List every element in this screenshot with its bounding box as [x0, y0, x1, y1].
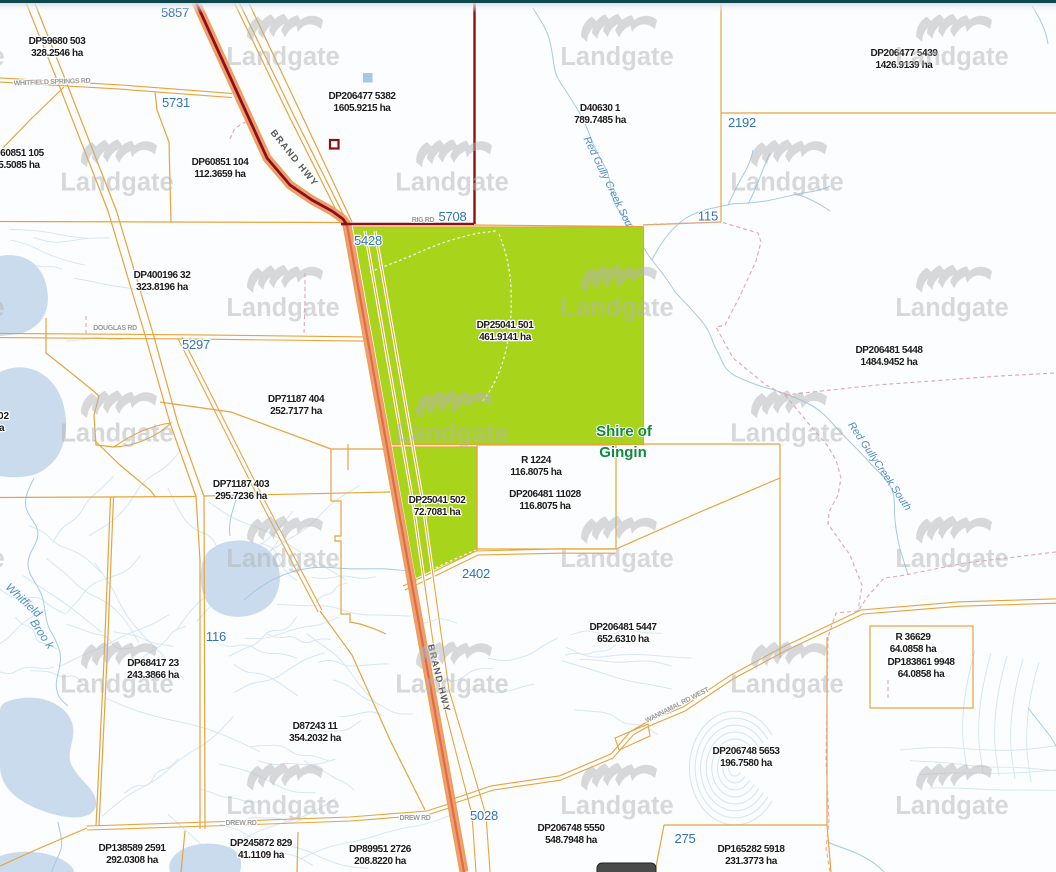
- svg-text:652.6310 ha: 652.6310 ha: [597, 634, 650, 645]
- svg-text:DP25041 501: DP25041 501: [477, 320, 535, 331]
- svg-text:196.7580 ha: 196.7580 ha: [720, 758, 773, 769]
- svg-text:DP89951 2726: DP89951 2726: [349, 844, 412, 855]
- svg-text:DP183861 9948: DP183861 9948: [887, 657, 955, 668]
- svg-text:DP71187 404: DP71187 404: [268, 394, 325, 405]
- svg-text:R 1224: R 1224: [521, 455, 552, 466]
- svg-text:DP245872 829: DP245872 829: [230, 838, 293, 849]
- svg-text:461.9141 ha: 461.9141 ha: [479, 332, 532, 343]
- svg-text:354.2032 ha: 354.2032 ha: [289, 733, 342, 744]
- svg-text:72.7081 ha: 72.7081 ha: [414, 507, 461, 518]
- svg-text:DP59680 503: DP59680 503: [29, 36, 87, 47]
- svg-text:DP25041 502: DP25041 502: [409, 495, 467, 506]
- svg-text:Shire of: Shire of: [596, 423, 653, 440]
- svg-text:DP165282 5918: DP165282 5918: [717, 844, 785, 855]
- svg-text:328.2546 ha: 328.2546 ha: [31, 48, 84, 59]
- svg-text:DP60851 104: DP60851 104: [192, 157, 250, 168]
- svg-text:DP400196 32: DP400196 32: [134, 270, 192, 281]
- svg-text:1605.9215 ha: 1605.9215 ha: [334, 103, 392, 114]
- svg-text:295.7236 ha: 295.7236 ha: [215, 491, 268, 502]
- svg-text:275: 275: [674, 831, 695, 846]
- svg-text:DP206748 5653: DP206748 5653: [712, 746, 780, 757]
- svg-text:116: 116: [206, 629, 226, 644]
- svg-text:789.7485 ha: 789.7485 ha: [574, 115, 627, 126]
- svg-text:DOUGLAS RD: DOUGLAS RD: [93, 325, 137, 332]
- svg-text:DP68417 23: DP68417 23: [127, 658, 179, 669]
- svg-text:5028: 5028: [470, 808, 498, 823]
- svg-text:DP206481 5447: DP206481 5447: [589, 622, 657, 633]
- svg-text:DREW RD: DREW RD: [226, 820, 257, 827]
- svg-text:116.8075 ha: 116.8075 ha: [519, 501, 571, 512]
- svg-text:5428: 5428: [354, 233, 382, 248]
- svg-text:116.8075 ha: 116.8075 ha: [510, 467, 562, 478]
- svg-text:5.5085 ha: 5.5085 ha: [0, 160, 41, 171]
- svg-text:323.8196 ha: 323.8196 ha: [136, 282, 189, 293]
- svg-text:02: 02: [0, 411, 10, 422]
- svg-text:548.7948 ha: 548.7948 ha: [545, 835, 598, 846]
- svg-text:DP206481 11028: DP206481 11028: [509, 489, 582, 500]
- svg-text:5731: 5731: [162, 95, 190, 110]
- svg-text:DP206481 5448: DP206481 5448: [855, 345, 923, 356]
- svg-text:D87243 11: D87243 11: [293, 721, 339, 732]
- svg-text:DP206477 5382: DP206477 5382: [328, 91, 396, 102]
- svg-text:41.1109 ha: 41.1109 ha: [238, 850, 285, 861]
- svg-text:115: 115: [698, 209, 718, 224]
- svg-text:DP71187 403: DP71187 403: [213, 479, 270, 490]
- svg-text:DP138589 2591: DP138589 2591: [98, 843, 166, 854]
- svg-text:64.0858 ha: 64.0858 ha: [898, 669, 945, 680]
- svg-text:292.0308 ha: 292.0308 ha: [106, 855, 159, 866]
- svg-text:2192: 2192: [728, 115, 756, 130]
- svg-text:RIG RD: RIG RD: [412, 217, 435, 224]
- svg-text:2402: 2402: [462, 566, 490, 581]
- svg-text:DREW RD: DREW RD: [400, 815, 431, 822]
- svg-text:64.0858 ha: 64.0858 ha: [890, 644, 937, 655]
- svg-text:60851 105: 60851 105: [0, 148, 45, 159]
- svg-text:Gingin: Gingin: [599, 444, 647, 461]
- svg-text:1484.9452 ha: 1484.9452 ha: [861, 357, 919, 368]
- svg-text:252.7177 ha: 252.7177 ha: [270, 406, 323, 417]
- svg-text:a: a: [0, 423, 5, 434]
- svg-text:D40630 1: D40630 1: [580, 103, 621, 114]
- svg-text:208.8220 ha: 208.8220 ha: [354, 856, 407, 867]
- svg-text:5297: 5297: [182, 337, 210, 352]
- svg-text:112.3659 ha: 112.3659 ha: [194, 169, 246, 180]
- svg-text:5708: 5708: [438, 209, 466, 224]
- svg-text:R 36629: R 36629: [895, 632, 931, 643]
- svg-text:DP206748 5550: DP206748 5550: [537, 823, 605, 834]
- svg-text:231.3773 ha: 231.3773 ha: [725, 856, 778, 867]
